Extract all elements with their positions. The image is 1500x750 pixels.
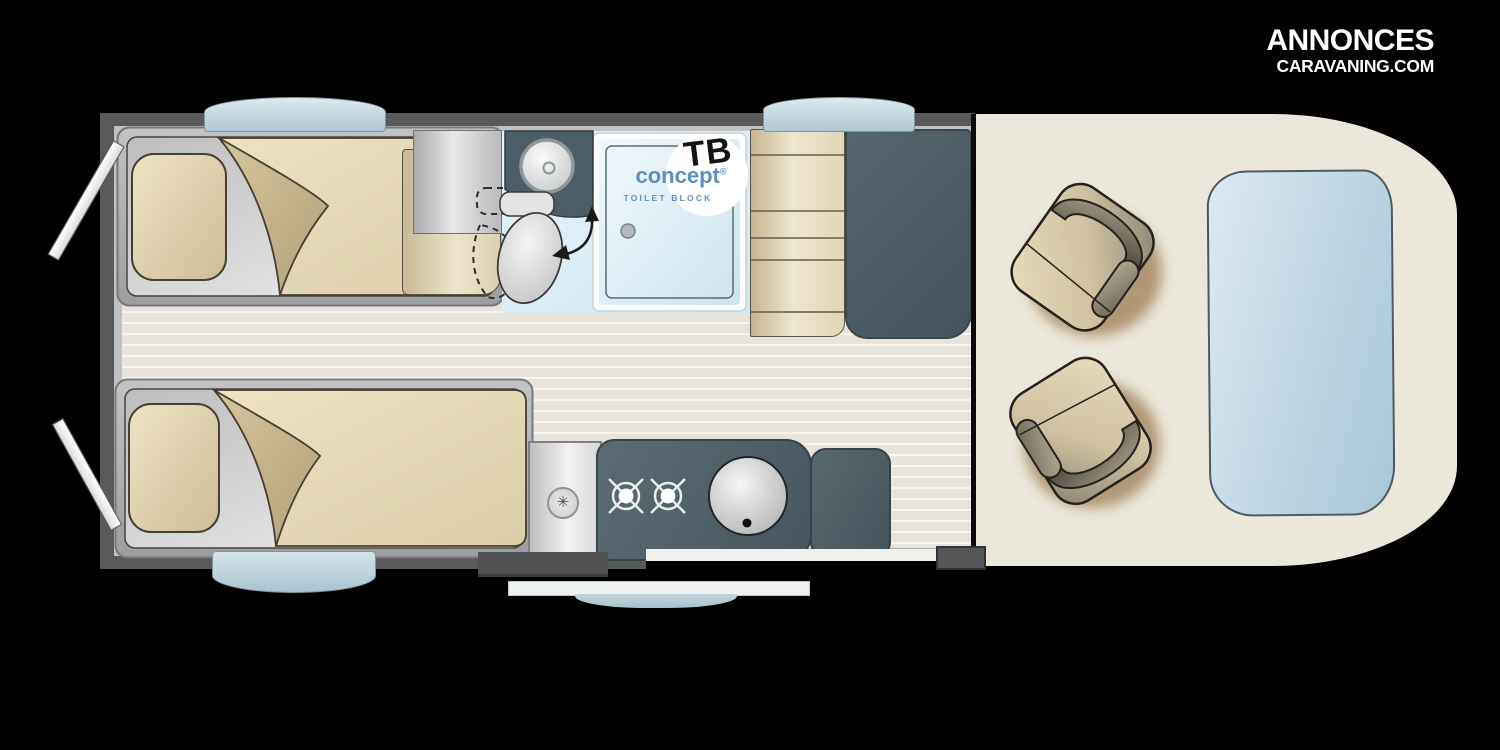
window-top-left (204, 97, 386, 132)
drawer-divider (751, 311, 844, 313)
drawer-divider (751, 237, 844, 239)
washbasin (521, 140, 573, 192)
cab-seats (985, 165, 1215, 525)
entry-door-rail (478, 552, 608, 577)
pillow (129, 404, 219, 532)
shower-drain (621, 224, 635, 238)
drawer-divider (751, 210, 844, 212)
site-logo-line2: CARAVANING.COM (1266, 58, 1434, 76)
wardrobe (845, 129, 972, 339)
tb-logo-subtitle: TOILET BLOCK (620, 193, 716, 203)
windshield (1206, 169, 1395, 517)
window-bottom (212, 551, 376, 593)
sink-drain (743, 519, 752, 528)
entry-step (575, 594, 737, 608)
drawer-divider (751, 259, 844, 261)
cab-divider (971, 114, 976, 566)
drawer-divider (751, 154, 844, 156)
site-logo-line1: ANNONCES (1266, 26, 1434, 56)
bed-lower (114, 378, 534, 560)
heater-vent-icon: ✳ (547, 487, 579, 519)
fridge-unit (810, 448, 891, 558)
kitchen-fixtures (596, 439, 808, 557)
tb-logo-name-text: concept (636, 163, 720, 188)
burner-left (609, 479, 643, 513)
site-logo: ANNONCES CARAVANING.COM (1266, 26, 1434, 76)
burner-right (651, 479, 685, 513)
floorplan-canvas: ANNONCES CARAVANING.COM (0, 0, 1500, 750)
drawer-stack (750, 129, 845, 337)
cab-step (936, 546, 986, 570)
kitchen-cabinet: ✳ (528, 441, 602, 561)
toilet-lid (500, 192, 554, 216)
pillow (132, 154, 226, 280)
window-top-right (763, 97, 915, 132)
tb-logo-name: concept® (626, 163, 736, 189)
tb-logo-registered: ® (720, 167, 727, 177)
entry-gap (646, 561, 975, 575)
